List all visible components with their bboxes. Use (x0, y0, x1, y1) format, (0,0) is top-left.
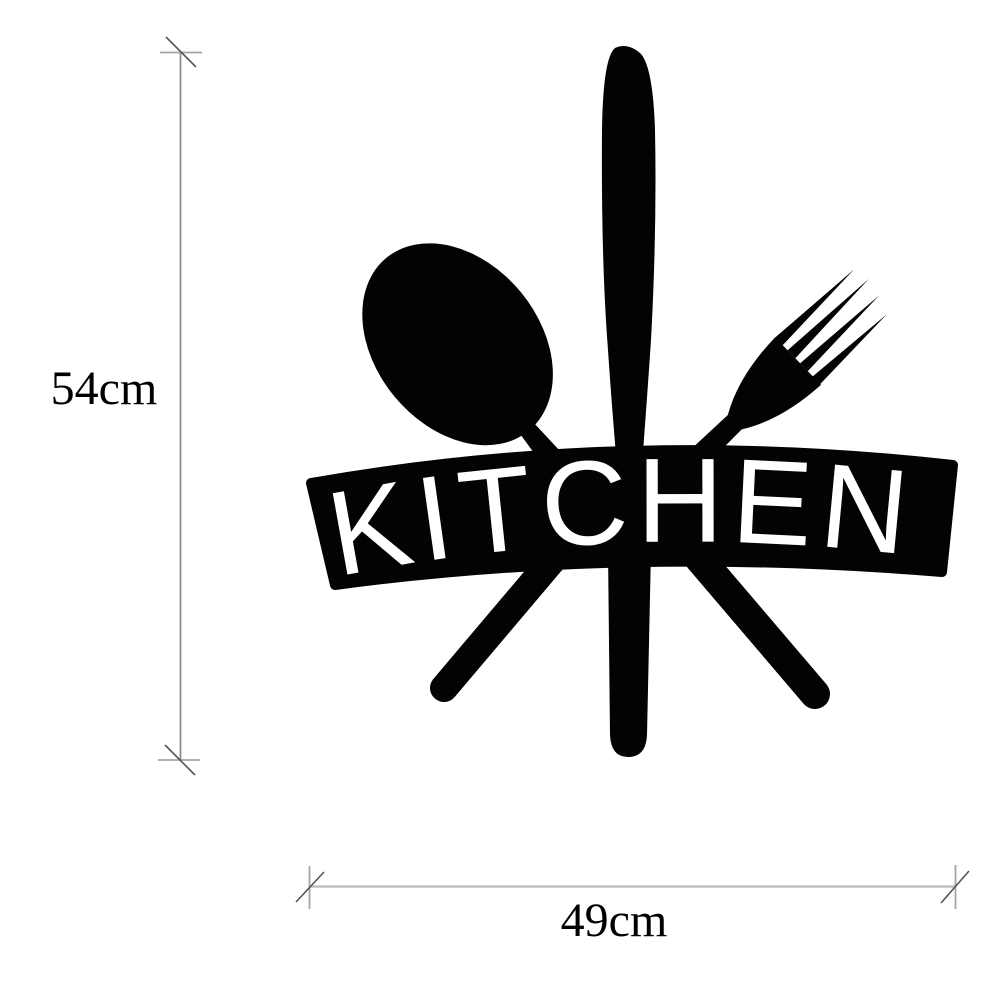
knife-icon (602, 46, 656, 757)
diagram-svg: KITCHEN 54cm 49cm (0, 0, 1000, 1000)
fork-handle (699, 558, 815, 694)
knife-blade (602, 46, 656, 478)
height-dimension: 54cm (51, 37, 202, 775)
product-dimension-diagram: KITCHEN 54cm 49cm (0, 0, 1000, 1000)
width-dimension: 49cm (296, 865, 969, 947)
width-dimension-label: 49cm (561, 894, 668, 947)
knife-handle (608, 550, 651, 757)
height-dimension-label: 54cm (51, 362, 158, 415)
kitchen-wall-art: KITCHEN (311, 46, 953, 757)
